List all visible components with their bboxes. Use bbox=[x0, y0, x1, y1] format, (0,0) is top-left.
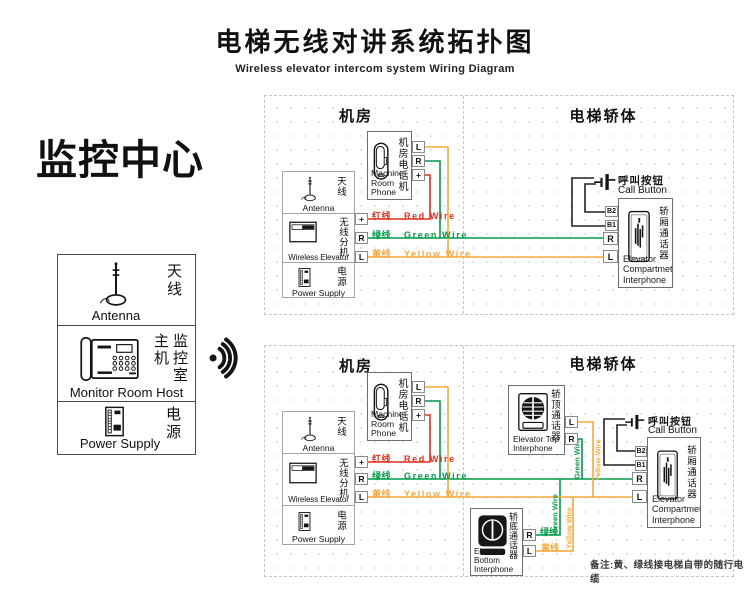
compartment-en2: Compartmet bbox=[652, 504, 701, 514]
red-wire-label: 红线Red Wire bbox=[372, 452, 456, 465]
equipment-power-zh: 电源 bbox=[333, 266, 347, 287]
green-wire-en: Green Wire bbox=[404, 471, 468, 481]
compartment-en3: Interphone bbox=[652, 515, 701, 525]
antenna-label-zh: 天线 bbox=[163, 263, 184, 299]
terminal-l: L bbox=[412, 141, 425, 153]
terminal-b2: B2 bbox=[605, 206, 618, 217]
elevator-car-label: 电梯轿体 bbox=[566, 353, 641, 374]
terminal-l: L bbox=[565, 416, 578, 428]
terminal-l: L bbox=[412, 381, 425, 393]
compartment-en2: Compartmet bbox=[623, 264, 673, 274]
yellow-wire-zh: 黄线 bbox=[372, 489, 391, 499]
terminal-r: R bbox=[603, 232, 618, 245]
terminal-r: R bbox=[412, 395, 425, 407]
terminal-r: R bbox=[355, 473, 368, 485]
machine-room-phone-box: 机房电话机 Machine Room Phone bbox=[367, 372, 412, 441]
equipment-wireless-zh: 无线分机 bbox=[335, 458, 349, 498]
wireless-unit-icon bbox=[288, 221, 318, 243]
green-wire-short-label: 绿线 bbox=[540, 525, 558, 538]
equipment-wireless-en: Wireless Elevator bbox=[283, 495, 354, 504]
terminal-b1: B1 bbox=[605, 220, 618, 231]
equipment-power-row: 电源 Power Supply bbox=[283, 263, 354, 298]
terminal-plus: + bbox=[412, 409, 425, 421]
red-wire-zh: 红线 bbox=[372, 211, 391, 221]
bottom-interphone-en2: Interphone bbox=[474, 565, 522, 574]
equipment-antenna-row: 天线 Antenna bbox=[283, 412, 354, 454]
equipment-power-en: Power Supply bbox=[283, 288, 354, 298]
red-wire-zh: 红线 bbox=[372, 454, 391, 464]
elevator-car-label: 电梯轿体 bbox=[566, 105, 641, 126]
terminal-plus: + bbox=[355, 456, 368, 468]
machine-room-phone-box: 机房电话机 Machine Room Phone bbox=[367, 131, 412, 200]
machine-room-equipment-box: 天线 Antenna 无线分机 Wireless Elevator 电源 Pow… bbox=[282, 171, 355, 298]
zone-divider bbox=[463, 96, 464, 314]
wiring-diagram-page: 电梯无线对讲系统拓扑图 Wireless elevator intercom s… bbox=[0, 0, 750, 589]
monitor-antenna-row: 天线 Antenna bbox=[58, 255, 195, 326]
terminal-r: R bbox=[632, 472, 647, 485]
compartment-interphone-box: 轿厢通话器 Elevator Compartmet Interphone bbox=[647, 437, 701, 528]
power-supply-icon bbox=[297, 510, 312, 533]
terminal-r: R bbox=[412, 155, 425, 167]
yellow-wire-vertical-label: Yellow Wire bbox=[594, 439, 603, 481]
wireless-unit-icon bbox=[288, 462, 318, 484]
phone-label-en2: Room Phone bbox=[371, 179, 411, 198]
wireless-signal-icon bbox=[207, 335, 247, 381]
desk-phone-icon bbox=[78, 336, 142, 382]
equipment-power-zh: 电源 bbox=[333, 510, 347, 531]
equipment-power-en: Power Supply bbox=[283, 534, 354, 544]
terminal-b1: B1 bbox=[635, 460, 647, 471]
equipment-antenna-zh: 天线 bbox=[333, 416, 347, 437]
speaker-icon bbox=[516, 392, 550, 432]
compartment-en3: Interphone bbox=[623, 275, 673, 285]
equipment-antenna-row: 天线 Antenna bbox=[283, 172, 354, 214]
antenna-icon bbox=[300, 416, 320, 443]
terminal-plus: + bbox=[412, 169, 425, 181]
machine-room-equipment-box: 天线 Antenna 无线分机 Wireless Elevator 电源 Pow… bbox=[282, 411, 355, 545]
yellow-wire-vertical-label: Yellow Wire bbox=[565, 507, 574, 549]
power-supply-icon bbox=[102, 406, 127, 437]
zone-divider bbox=[463, 346, 464, 576]
monitor-center-box: 天线 Antenna 监控室主机 Monitor Room Host 电源 Po… bbox=[57, 254, 196, 455]
equipment-wireless-row: 无线分机 Wireless Elevator bbox=[283, 214, 354, 263]
phone-label-en2: Room Phone bbox=[371, 420, 411, 439]
host-label-zh: 监控室主机 bbox=[151, 333, 189, 387]
green-wire-en: Green Wire bbox=[404, 230, 468, 240]
terminal-r: R bbox=[523, 529, 536, 541]
terminal-b2: B2 bbox=[635, 446, 647, 457]
power-supply-icon bbox=[297, 266, 312, 289]
compartment-interphone-box: 轿厢通话器 Elevator Compartmet Interphone bbox=[618, 198, 673, 288]
equipment-antenna-zh: 天线 bbox=[333, 176, 347, 197]
terminal-r: R bbox=[355, 232, 368, 244]
call-button-icon bbox=[625, 413, 645, 431]
elevator-bottom-interphone-box: 轿底通话器 Elevator Bottom Interphone bbox=[470, 508, 523, 576]
yellow-wire-label: 黄线Yellow Wire bbox=[372, 247, 472, 260]
monitor-center-heading: 监控中心 bbox=[36, 126, 204, 186]
terminal-l: L bbox=[523, 545, 536, 557]
compartment-zh: 轿厢通话器 bbox=[683, 445, 697, 500]
terminal-l: L bbox=[355, 251, 368, 263]
call-button-en: Call Button bbox=[618, 185, 667, 196]
call-button-icon bbox=[594, 172, 616, 192]
terminal-l: L bbox=[603, 250, 618, 263]
equipment-power-row: 电源 Power Supply bbox=[283, 506, 354, 545]
antenna-icon bbox=[98, 261, 134, 309]
power-label-en: Power Supply bbox=[60, 436, 180, 451]
red-wire-en: Red Wire bbox=[404, 454, 456, 464]
terminal-plus: + bbox=[355, 213, 368, 225]
yellow-wire-en: Yellow Wire bbox=[404, 489, 472, 499]
terminal-r: R bbox=[565, 433, 578, 445]
antenna-label-en: Antenna bbox=[60, 308, 172, 323]
red-wire-en: Red Wire bbox=[404, 211, 456, 221]
green-wire-zh: 绿线 bbox=[372, 471, 391, 481]
equipment-wireless-zh: 无线分机 bbox=[335, 217, 349, 257]
elevator-top-interphone-box: 轿顶通话器 Elevator Top Interphone bbox=[508, 385, 565, 455]
terminal-l: L bbox=[355, 491, 368, 503]
compartment-en1: Elevator bbox=[652, 494, 701, 504]
yellow-wire-label: 黄线Yellow Wire bbox=[372, 487, 472, 500]
terminal-l: L bbox=[632, 490, 647, 503]
equipment-antenna-en: Antenna bbox=[283, 203, 354, 213]
antenna-icon bbox=[300, 176, 320, 203]
equipment-wireless-en: Wireless Elevator bbox=[283, 253, 354, 262]
header: 电梯无线对讲系统拓扑图 Wireless elevator intercom s… bbox=[200, 22, 550, 75]
yellow-wire-zh: 黄线 bbox=[372, 249, 391, 259]
green-wire-zh: 绿线 bbox=[372, 230, 391, 240]
equipment-wireless-row: 无线分机 Wireless Elevator bbox=[283, 454, 354, 506]
yellow-wire-en: Yellow Wire bbox=[404, 249, 472, 259]
call-button-en: Call Button bbox=[648, 425, 697, 436]
green-wire-label: 绿线Green Wire bbox=[372, 469, 468, 482]
compartment-zh: 轿厢通话器 bbox=[655, 206, 669, 261]
red-wire-label: 红线Red Wire bbox=[372, 209, 456, 222]
machine-room-label: 机房 bbox=[330, 105, 382, 126]
monitor-power-row: 电源 Power Supply bbox=[58, 402, 195, 452]
page-title: 电梯无线对讲系统拓扑图 bbox=[200, 22, 550, 59]
bottom-interphone-en1: Elevator Bottom bbox=[474, 547, 522, 565]
equipment-antenna-en: Antenna bbox=[283, 443, 354, 453]
top-interphone-en2: Interphone bbox=[513, 444, 559, 453]
yellow-wire-short-label: 黄线 bbox=[541, 541, 559, 554]
green-wire-vertical-label: Green Wire bbox=[573, 439, 582, 479]
monitor-host-row: 监控室主机 Monitor Room Host bbox=[58, 326, 195, 402]
green-wire-label: 绿线Green Wire bbox=[372, 228, 468, 241]
page-subtitle: Wireless elevator intercom system Wiring… bbox=[200, 63, 550, 75]
host-label-en: Monitor Room Host bbox=[58, 385, 195, 400]
footer-note: 备注:黄、绿线接电梯自带的随行电缆 bbox=[590, 557, 750, 585]
compartment-en1: Elevator bbox=[623, 254, 673, 264]
